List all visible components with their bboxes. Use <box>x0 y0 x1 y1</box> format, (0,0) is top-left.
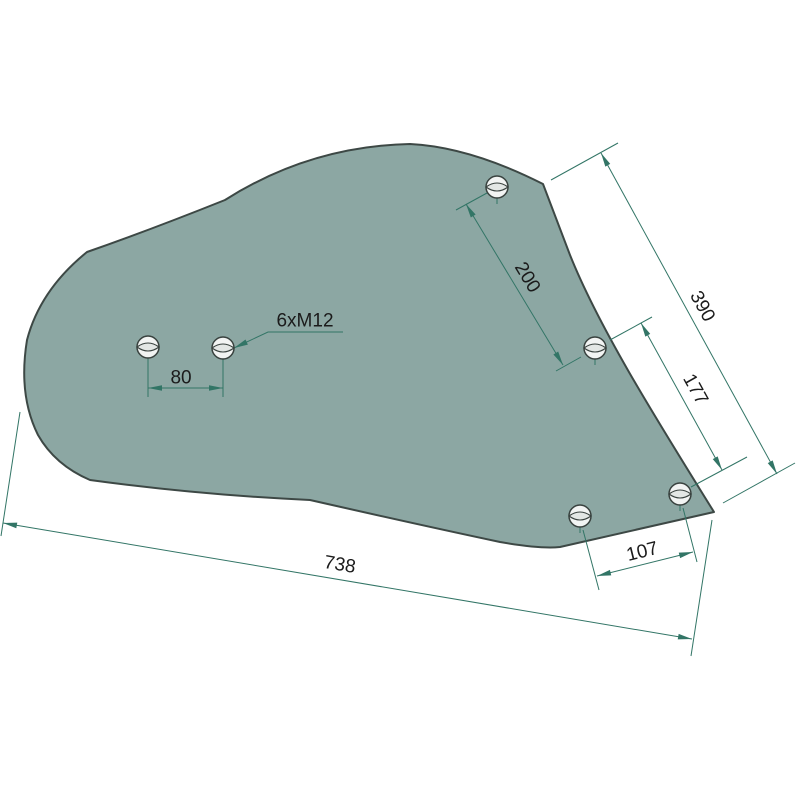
arrowhead-icon <box>3 520 18 528</box>
dimension-390-label: 390 <box>685 288 719 326</box>
dimension-177-label: 177 <box>678 371 712 409</box>
technical-drawing-canvas: 802001773901077386xM12 <box>0 0 800 800</box>
arrowhead-icon <box>713 456 725 471</box>
extension-line <box>691 520 712 656</box>
dimension-738-label: 738 <box>322 552 357 578</box>
extension-line <box>610 317 652 340</box>
extension-line <box>1 412 20 536</box>
thread-callout-label: 6xM12 <box>276 311 333 332</box>
arrowhead-icon <box>596 570 611 579</box>
arrowhead-icon <box>599 152 611 167</box>
extension-line <box>723 463 795 503</box>
arrowhead-icon <box>679 549 694 558</box>
dimension-80-label: 80 <box>170 368 191 389</box>
drawing-svg: 802001773901077386xM12 <box>0 0 800 800</box>
arrowhead-icon <box>678 634 693 642</box>
part-outline <box>24 144 714 547</box>
